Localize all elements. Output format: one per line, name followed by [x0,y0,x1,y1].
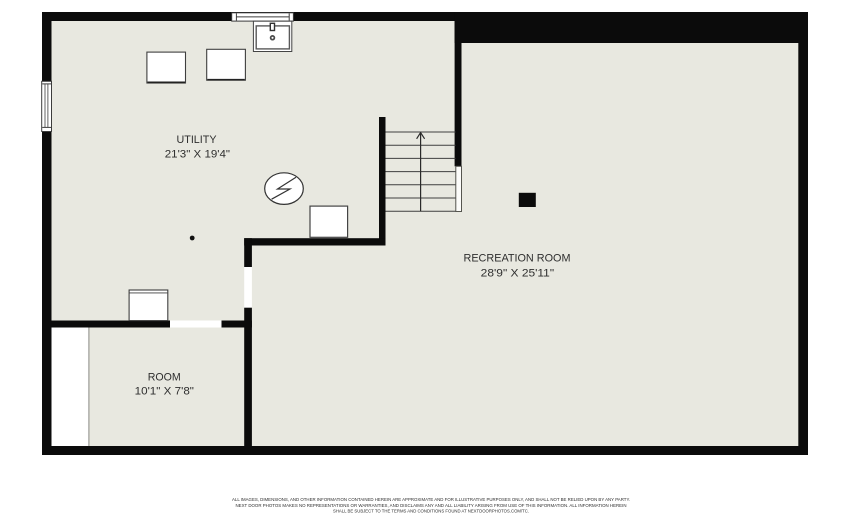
svg-text:NEXT DOOR PHOTOS MAKES NO REPR: NEXT DOOR PHOTOS MAKES NO REPRESENTATION… [236,503,627,508]
svg-text:SHALL BE SUBJECT TO THE TERMS: SHALL BE SUBJECT TO THE TERMS AND CONDIT… [333,508,529,513]
svg-text:ALL IMAGES, DIMENSIONS, AND OT: ALL IMAGES, DIMENSIONS, AND OTHER INFORM… [232,497,630,502]
svg-text:10'1" X 7'8": 10'1" X 7'8" [135,386,194,398]
svg-text:RECREATION ROOM: RECREATION ROOM [464,253,571,265]
svg-text:28'9" X 25'11": 28'9" X 25'11" [481,268,555,280]
svg-text:ROOM: ROOM [148,372,181,384]
svg-text:21'3" X 19'4": 21'3" X 19'4" [165,149,230,161]
svg-text:UTILITY: UTILITY [177,134,218,146]
